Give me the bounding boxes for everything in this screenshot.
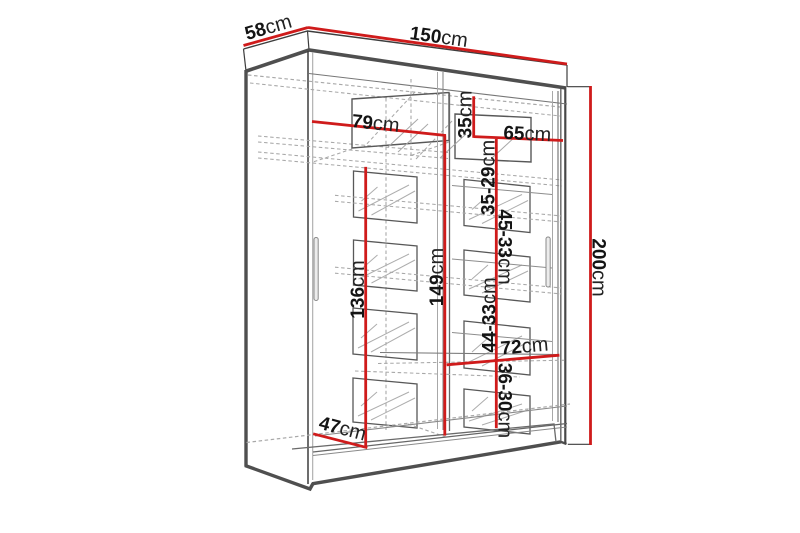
svg-text:35-29cm: 35-29cm xyxy=(478,140,500,215)
svg-text:79cm: 79cm xyxy=(351,110,401,137)
svg-text:36-30cm: 36-30cm xyxy=(493,363,515,438)
svg-text:150cm: 150cm xyxy=(408,22,469,52)
svg-text:35cm: 35cm xyxy=(455,91,477,139)
svg-text:45-33cm: 45-33cm xyxy=(493,209,515,284)
svg-text:65cm: 65cm xyxy=(503,122,552,146)
svg-text:44-33cm: 44-33cm xyxy=(479,277,501,352)
svg-text:72cm: 72cm xyxy=(500,333,550,359)
svg-text:149cm: 149cm xyxy=(426,248,448,306)
svg-text:200cm: 200cm xyxy=(588,238,610,296)
svg-text:136cm: 136cm xyxy=(347,260,369,318)
